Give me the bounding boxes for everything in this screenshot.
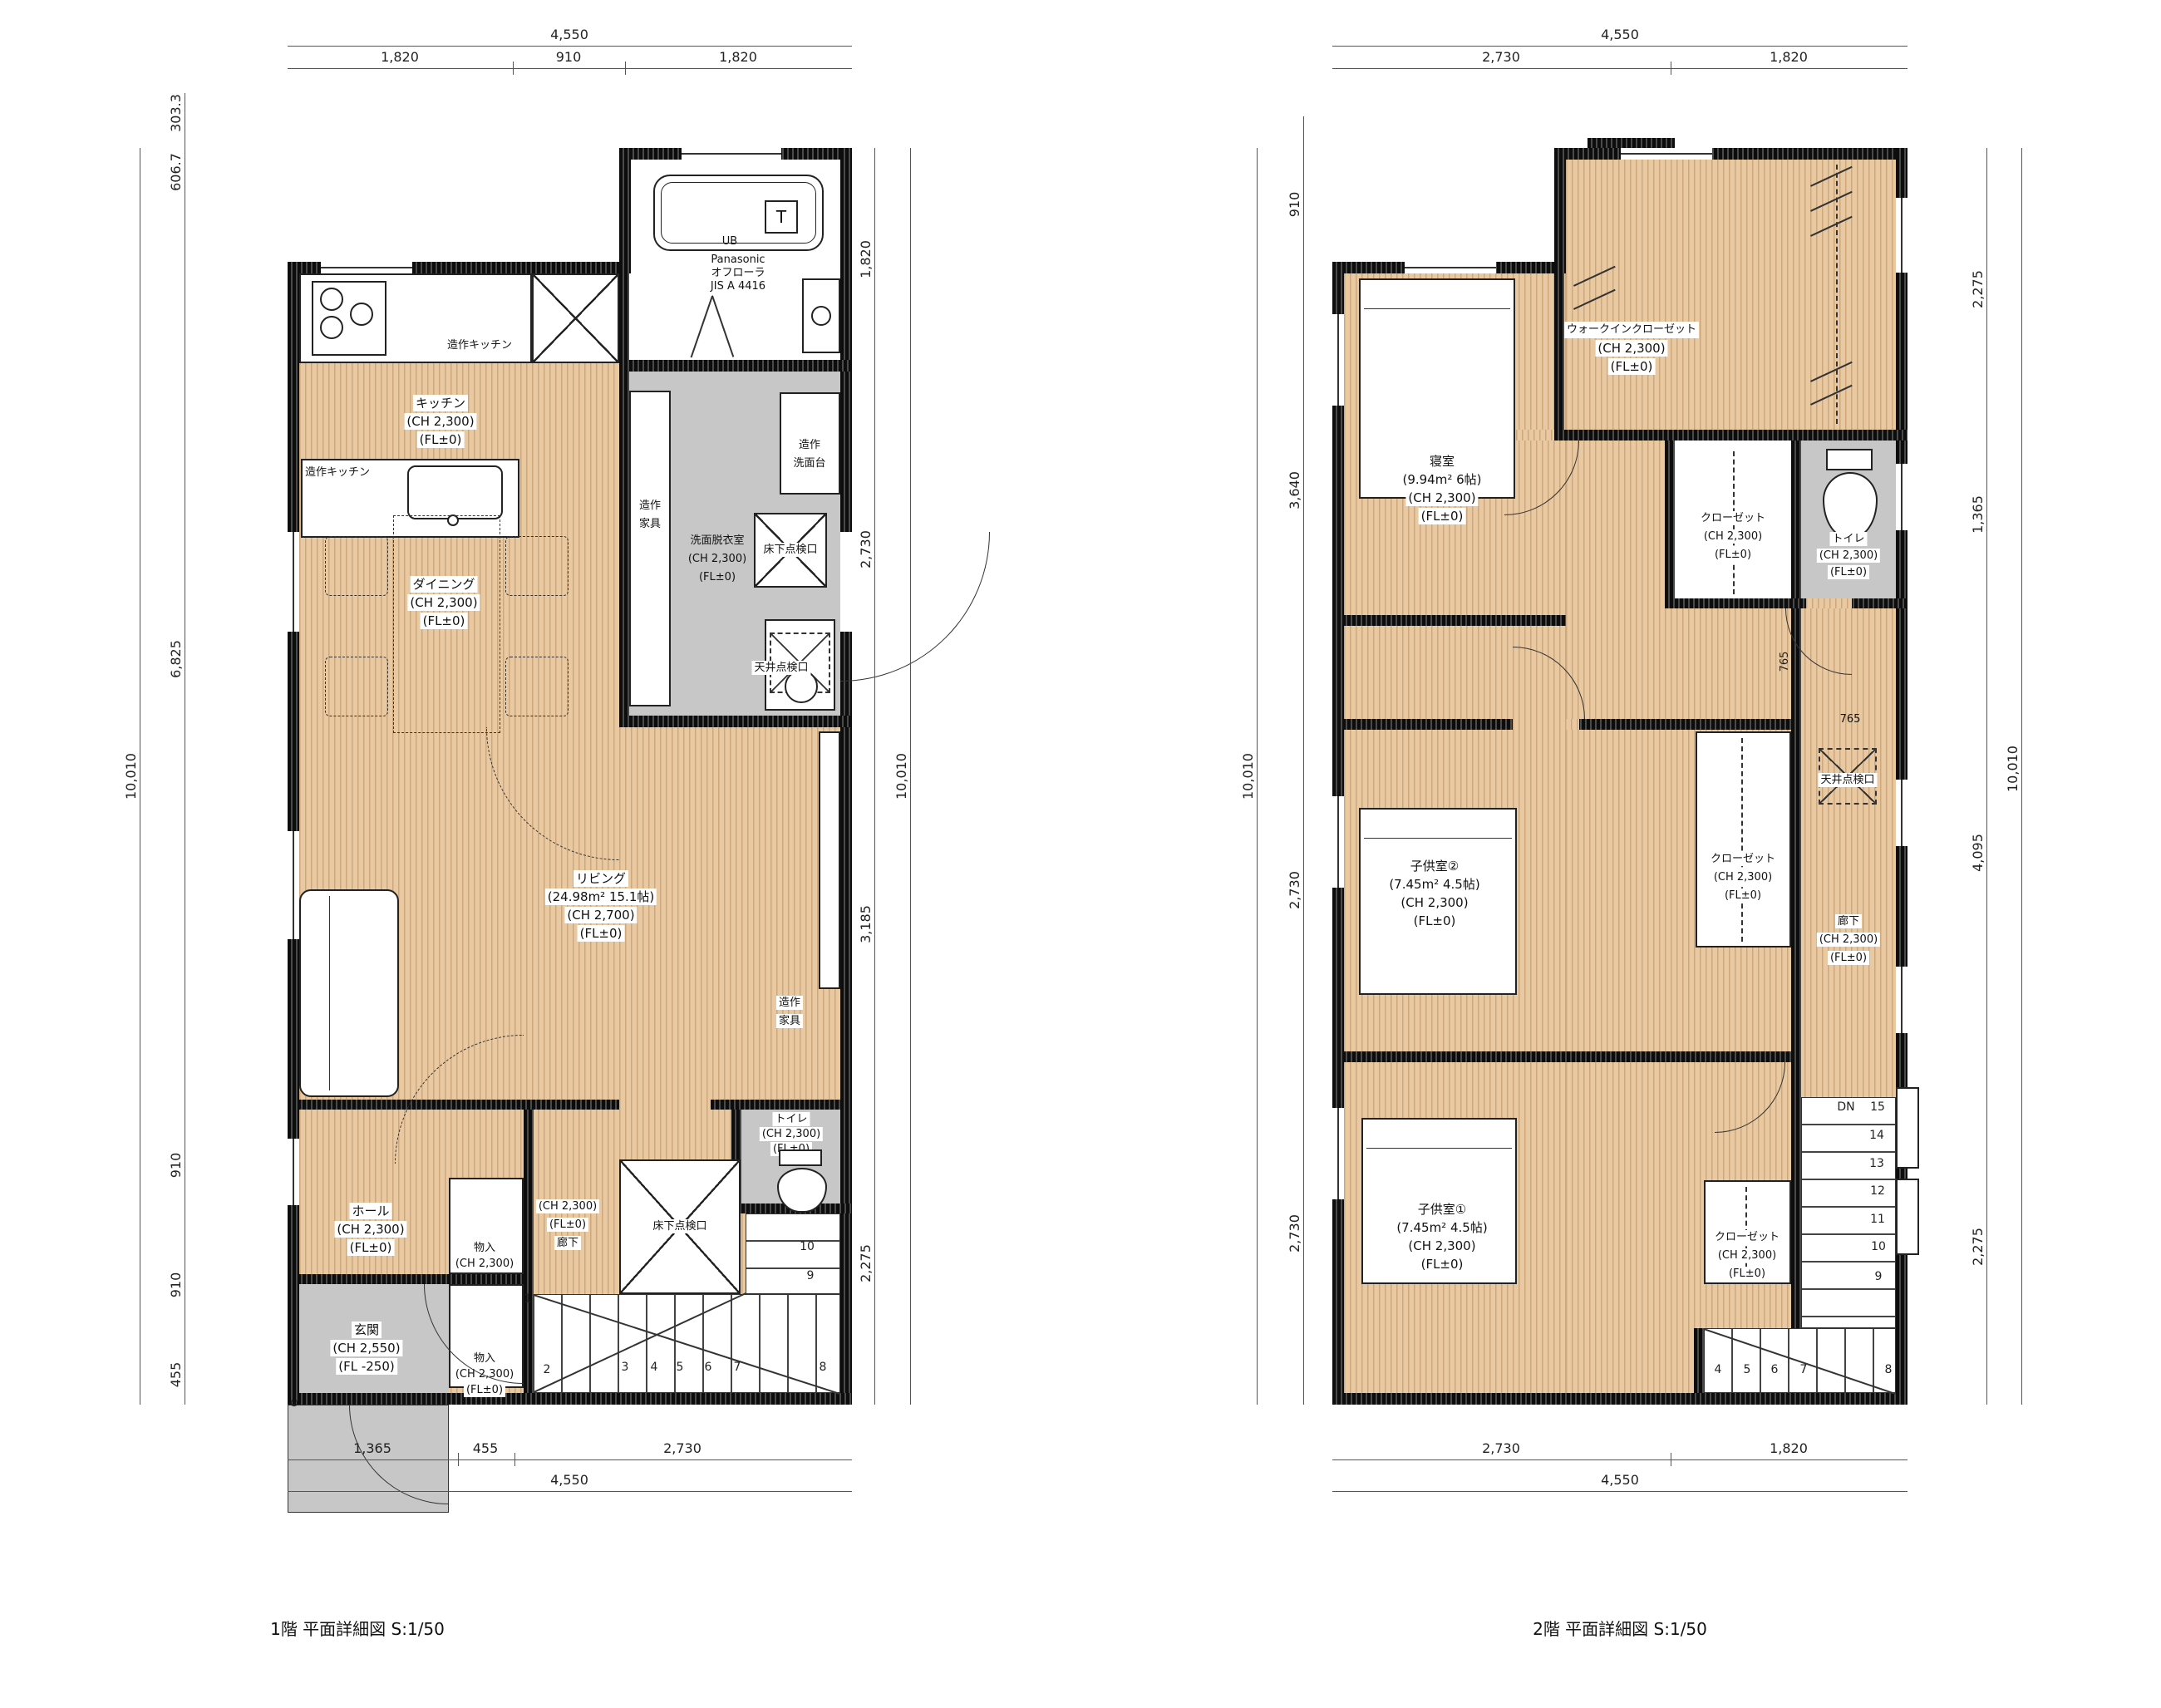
toilet-name: トイレ (772, 1112, 810, 1126)
stair-number: 15 (1870, 1100, 1885, 1114)
floor-access-label: 床下点検口 (761, 543, 820, 557)
dim-f1-right-seg: 3,185 (858, 905, 874, 943)
wic-fl: (FL±0) (1608, 358, 1656, 375)
corridor-name: 廊下 (554, 1236, 581, 1250)
stair-number: 2 (544, 1363, 551, 1376)
stair-number: 7 (1800, 1363, 1808, 1376)
bathtub (653, 175, 824, 251)
dim-line (1332, 1459, 1907, 1460)
window (1896, 198, 1907, 273)
window (321, 262, 412, 273)
floor-plan-sheet: { "captions": {"floor1": "1階 平面詳細図 S:1/5… (0, 0, 2161, 1708)
shower-drain (811, 306, 831, 326)
stair-number: 1 (524, 1292, 532, 1306)
dining-fl: (FL±0) (421, 613, 468, 629)
sofa-seam (329, 896, 330, 1090)
custom-kitchen-label: 造作キッチン (305, 465, 370, 480)
tv-cabinet (819, 731, 840, 989)
dim-f2-top-seg: 2,730 (1482, 49, 1520, 66)
washroom-fl: (FL±0) (699, 570, 736, 584)
dim-line (1332, 68, 1907, 69)
dim-f1-top-seg: 1,820 (381, 49, 419, 66)
dim-line (1332, 1491, 1907, 1492)
dim-f1-left-total: 10,010 (123, 753, 140, 800)
toilet-tank (1826, 449, 1873, 470)
window (288, 831, 299, 939)
burner (320, 288, 343, 311)
wall (1554, 148, 1566, 273)
dim-line (288, 46, 852, 47)
wall (1791, 441, 1801, 608)
chair (325, 657, 388, 716)
closet-fl: (FL±0) (1712, 548, 1754, 562)
bedroom-ch: (CH 2,300) (1405, 490, 1478, 506)
stair-number: 4 (1715, 1363, 1722, 1376)
bath-model: オフローラ (711, 266, 765, 280)
stair-number: 14 (1869, 1129, 1884, 1142)
window (288, 532, 299, 632)
burner (320, 316, 343, 339)
dim-tick (1671, 62, 1671, 75)
bedroom-name: 寝室 (1427, 453, 1457, 470)
furniture-label: 造作 (776, 996, 803, 1010)
dim-f2-top-seg: 1,820 (1770, 49, 1808, 66)
wall (1665, 441, 1675, 608)
furniture-label: 家具 (639, 517, 661, 531)
dim-tick (514, 1453, 515, 1466)
closet-fl: (FL±0) (1722, 888, 1764, 903)
bay-window (1896, 1087, 1919, 1169)
dim-f1-bottom-seg: 455 (473, 1440, 499, 1457)
window (1332, 314, 1344, 406)
dim-f1-left-seg: 606.7 (168, 153, 185, 191)
wall (1665, 598, 1907, 608)
dim-f2-left-total: 10,010 (1240, 753, 1257, 800)
toilet-fl: (FL±0) (1828, 565, 1869, 579)
dim-f1-left-seg: 455 (168, 1362, 185, 1388)
stair-number: 7 (734, 1361, 741, 1374)
wall (288, 1274, 524, 1284)
dim-line (2021, 148, 2022, 1405)
child1-area: (7.45m² 4.5帖) (1394, 1219, 1489, 1236)
dim-line (1986, 148, 1987, 1405)
hanger-rod (1741, 738, 1743, 942)
floor2-caption: 2階 平面詳細図 S:1/50 (1533, 1619, 1707, 1639)
dim-tick (625, 62, 626, 75)
wall (619, 716, 852, 727)
vanity-label: 造作 (799, 438, 820, 452)
corridor-name: 廊下 (1835, 914, 1862, 928)
entrance-fl: (FL -250) (336, 1358, 397, 1375)
corridor-ch: (CH 2,300) (536, 1199, 599, 1213)
dim-line (874, 148, 875, 1405)
furniture-label: 造作 (639, 499, 661, 513)
pillow-line (1366, 1148, 1512, 1149)
corridor-fl: (FL±0) (547, 1218, 588, 1232)
wall (711, 1100, 852, 1110)
dim-tick (1671, 1453, 1671, 1466)
living-ch: (CH 2,700) (564, 907, 637, 923)
window (1332, 1108, 1344, 1199)
child1-ch: (CH 2,300) (1405, 1238, 1478, 1254)
stairs (746, 1213, 840, 1294)
dim-line (1257, 148, 1258, 1405)
dim-f2-right-seg: 4,095 (1970, 834, 1986, 872)
wall (288, 1393, 852, 1405)
dim-f1-left-seg: 6,825 (168, 640, 185, 678)
dim-line (140, 148, 140, 1405)
living-area: (24.98m² 15.1帖) (545, 888, 657, 905)
stair-dn-label: DN (1837, 1100, 1854, 1114)
washroom-ch: (CH 2,300) (688, 552, 746, 566)
dim-f2-right-seg: 1,365 (1970, 495, 1986, 534)
wall (1332, 1393, 1907, 1405)
dim-f1-top-total: 4,550 (550, 27, 588, 43)
dim-line (288, 1459, 852, 1460)
entrance-ch: (CH 2,550) (330, 1340, 402, 1356)
dim-line (288, 68, 852, 69)
dim-f1-right-seg: 2,730 (858, 530, 874, 569)
dim-f2-right-seg: 2,275 (1970, 1228, 1986, 1266)
dim-tick (513, 62, 514, 75)
entrance-name: 玄関 (352, 1322, 381, 1338)
closet-name: クローゼット (1712, 1230, 1782, 1244)
custom-kitchen-label: 造作キッチン (447, 338, 512, 352)
washroom-name: 洗面脱衣室 (690, 534, 744, 548)
door-dim: 765 (1777, 652, 1794, 672)
built-in-cabinet (629, 391, 671, 706)
bath-brand: Panasonic (711, 253, 765, 267)
dim-f1-left-seg: 910 (168, 1272, 185, 1298)
chair (325, 536, 388, 596)
dim-f1-bottom-seg: 2,730 (663, 1440, 701, 1457)
chair (505, 657, 569, 716)
dim-f1-top-seg: 1,820 (719, 49, 757, 66)
stair-number: 6 (705, 1361, 712, 1374)
furniture-label: 家具 (776, 1014, 803, 1028)
toilet-ch: (CH 2,300) (760, 1127, 823, 1141)
dim-f2-bottom-seg: 2,730 (1482, 1440, 1520, 1457)
window (1896, 780, 1907, 846)
child2-name: 子供室② (1408, 858, 1461, 874)
stair-number: 11 (1870, 1213, 1885, 1226)
stair-number: 4 (651, 1361, 658, 1374)
toilet-name: トイレ (1829, 532, 1867, 546)
kitchen-ch: (CH 2,300) (404, 413, 476, 430)
wall (1332, 1051, 1791, 1062)
kitchen-sink (407, 465, 503, 519)
washer-drain (785, 670, 818, 703)
wic-name: ウォークインクローゼット (1564, 322, 1699, 338)
dim-line (288, 1491, 852, 1492)
ceiling-access-label: 天井点検口 (751, 661, 810, 675)
corridor-fl: (FL±0) (1828, 951, 1869, 965)
living-name: リビング (573, 870, 628, 887)
window (1896, 464, 1907, 530)
sofa (299, 889, 399, 1097)
dim-f2-right-seg: 2,275 (1970, 270, 1986, 308)
storage1-ch: (CH 2,300) (453, 1257, 516, 1271)
bath-standard: JIS A 4416 (711, 279, 765, 293)
stair-number: 6 (1771, 1363, 1779, 1376)
pillow-line (1364, 308, 1510, 309)
stair-number: 5 (677, 1361, 684, 1374)
roof-bump (1588, 138, 1675, 148)
dim-f1-right-seg: 2,275 (858, 1244, 874, 1282)
dim-f1-left-seg: 303.3 (168, 94, 185, 132)
closet-ch: (CH 2,300) (1711, 870, 1775, 884)
floor-access-label: 床下点検口 (650, 1219, 709, 1233)
wall (1791, 1097, 1801, 1328)
bath-ub-label: UB (722, 234, 737, 249)
closet (1696, 731, 1791, 948)
child2-area: (7.45m² 4.5帖) (1386, 876, 1482, 893)
floor1-plan: T UB Panasonic オフローラ JIS A 4416 造作キッチン キ… (288, 148, 852, 1405)
dim-line (185, 93, 185, 1405)
bay-window (1896, 1179, 1919, 1255)
chair (505, 536, 569, 596)
dim-line (1332, 46, 1907, 47)
closet-name: クローゼット (1698, 511, 1768, 525)
dim-f2-left-seg: 3,640 (1287, 471, 1303, 509)
wall (1554, 273, 1564, 441)
closet-name: クローゼット (1708, 852, 1778, 866)
child2-ch: (CH 2,300) (1398, 894, 1470, 911)
window (682, 148, 781, 160)
window (1332, 796, 1344, 888)
dining-name: ダイニング (410, 576, 477, 593)
living-fl: (FL±0) (578, 925, 625, 942)
dim-f2-top-total: 4,550 (1601, 27, 1639, 43)
child2-fl: (FL±0) (1411, 913, 1459, 929)
hall-name: ホール (349, 1203, 391, 1219)
storage1-name: 物入 (471, 1241, 498, 1255)
wall (1554, 430, 1907, 441)
storage2-fl: (FL±0) (464, 1383, 505, 1397)
dining-ch: (CH 2,300) (407, 594, 480, 611)
vanity-label: 洗面台 (793, 456, 825, 470)
stair-number: 8 (820, 1361, 827, 1374)
window (1405, 262, 1496, 273)
kitchen-name: キッチン (413, 395, 468, 411)
dim-f2-bottom-total: 4,550 (1601, 1472, 1639, 1489)
door-opening (1513, 719, 1579, 730)
wic-ch: (CH 2,300) (1595, 340, 1667, 357)
stair-number: 13 (1869, 1157, 1884, 1170)
dim-f2-left-seg: 910 (1287, 192, 1303, 218)
child1-fl: (FL±0) (1419, 1256, 1466, 1272)
wall (840, 148, 852, 1405)
dim-f1-bottom-seg: 1,365 (353, 1440, 391, 1457)
burner (350, 303, 373, 326)
wall (619, 360, 852, 372)
stair-number: 9 (1875, 1270, 1883, 1283)
pillow-line (1364, 838, 1512, 839)
closet-ch: (CH 2,300) (1716, 1248, 1779, 1263)
dim-f2-bottom-seg: 1,820 (1770, 1440, 1808, 1457)
hanger-rod (1836, 165, 1838, 424)
window (1621, 148, 1712, 160)
dim-f1-top-seg: 910 (556, 49, 582, 66)
bedroom-area: (9.94m² 6帖) (1400, 471, 1484, 488)
pantry-xbox (532, 273, 619, 363)
stair-number: 10 (1871, 1240, 1886, 1253)
door-dim: 765 (1840, 712, 1861, 726)
closet-fl: (FL±0) (1726, 1267, 1768, 1281)
stair-number: 5 (1744, 1363, 1751, 1376)
hall-ch: (CH 2,300) (334, 1221, 406, 1238)
stair-number: 3 (622, 1361, 629, 1374)
window (1896, 967, 1907, 1033)
wall (1694, 1328, 1704, 1393)
wall (1554, 148, 1907, 160)
corridor-ch: (CH 2,300) (1817, 933, 1880, 947)
dim-line (1303, 116, 1304, 1405)
door-opening (1806, 598, 1852, 608)
wall (1332, 615, 1566, 626)
ceiling-access-label: 天井点検口 (1818, 773, 1877, 787)
kitchen-fl: (FL±0) (417, 431, 465, 448)
survey-mark: ⊗ (290, 1396, 299, 1410)
wall (1791, 608, 1801, 1097)
dim-f1-left-seg: 910 (168, 1153, 185, 1179)
floor2-plan: 寝室 (9.94m² 6帖) (CH 2,300) (FL±0) ウォークインク… (1332, 148, 1907, 1405)
toilet-ch: (CH 2,300) (1817, 549, 1880, 563)
wall (524, 1110, 534, 1393)
child1-name: 子供室① (1415, 1201, 1469, 1218)
dim-tick (458, 1453, 459, 1466)
wall (619, 160, 629, 727)
stair-number: 8 (1885, 1363, 1893, 1376)
dim-line (910, 148, 911, 1405)
stair-number: 12 (1870, 1184, 1885, 1198)
dim-f1-bottom-total: 4,550 (550, 1472, 588, 1489)
dim-f1-right-total: 10,010 (893, 753, 910, 800)
bedroom-fl: (FL±0) (1419, 508, 1466, 524)
dim-f2-right-total: 10,010 (2005, 746, 2021, 792)
floor1-caption: 1階 平面詳細図 S:1/50 (270, 1619, 445, 1639)
dim-f2-left-seg: 2,730 (1287, 1214, 1303, 1253)
toilet-tank (779, 1149, 822, 1166)
hall-fl: (FL±0) (347, 1239, 395, 1256)
dim-f1-right-seg: 1,820 (858, 240, 874, 278)
bath-t-box: T (765, 200, 798, 234)
window (288, 1139, 299, 1205)
stair-number: 9 (807, 1269, 815, 1282)
closet-ch: (CH 2,300) (1701, 529, 1765, 544)
dim-f2-left-seg: 2,730 (1287, 871, 1303, 909)
bath-t-label: T (776, 207, 786, 227)
stair-number: 10 (800, 1240, 815, 1253)
